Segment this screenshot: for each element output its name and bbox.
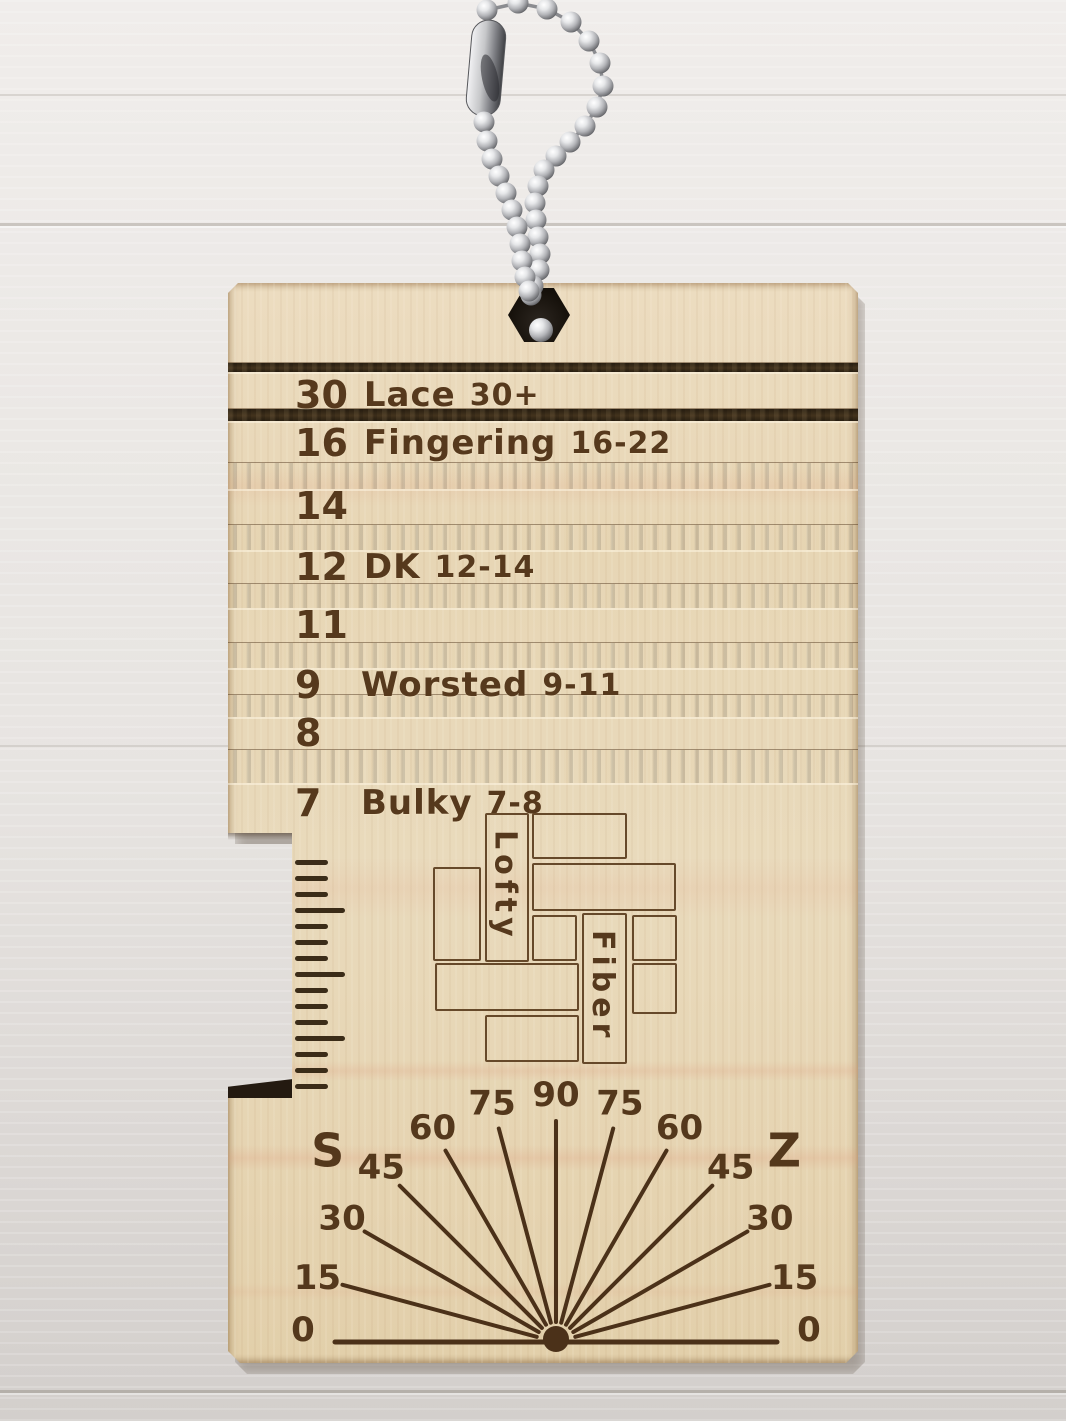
plank-seam xyxy=(0,94,1066,96)
angle-label: 0 xyxy=(797,1310,821,1350)
angle-label: 0 xyxy=(291,1310,315,1350)
fan-line xyxy=(365,1232,539,1333)
fan-center xyxy=(543,1326,569,1352)
angle-label: 30 xyxy=(318,1199,365,1239)
photo-scene: 30 Lace 30+ 16 Fingering 16-22 14 12 DK … xyxy=(0,0,1066,1421)
angle-label: 75 xyxy=(468,1083,515,1123)
angle-label: 30 xyxy=(746,1199,793,1239)
angle-label: 15 xyxy=(771,1258,818,1298)
fan-line xyxy=(446,1151,547,1325)
fan-line xyxy=(566,1151,667,1325)
plank-seam xyxy=(0,1390,1066,1393)
angle-label: 60 xyxy=(656,1108,703,1148)
wpi-gauge-board: 30 Lace 30+ 16 Fingering 16-22 14 12 DK … xyxy=(228,283,858,1363)
notch-top-shadow xyxy=(228,833,292,840)
fan-line xyxy=(573,1232,747,1333)
s-twist-label: S xyxy=(311,1123,344,1177)
angle-label: 75 xyxy=(596,1083,643,1123)
angle-label: 60 xyxy=(409,1108,456,1148)
angle-label: 45 xyxy=(358,1147,405,1187)
angle-label: 15 xyxy=(294,1258,341,1298)
z-twist-label: Z xyxy=(768,1123,801,1177)
angle-label: 45 xyxy=(707,1147,754,1187)
angle-label: 90 xyxy=(532,1075,579,1115)
plank-seam xyxy=(0,223,1066,226)
twist-angle-fan: 015304560759075604530150SZ xyxy=(228,283,858,1363)
